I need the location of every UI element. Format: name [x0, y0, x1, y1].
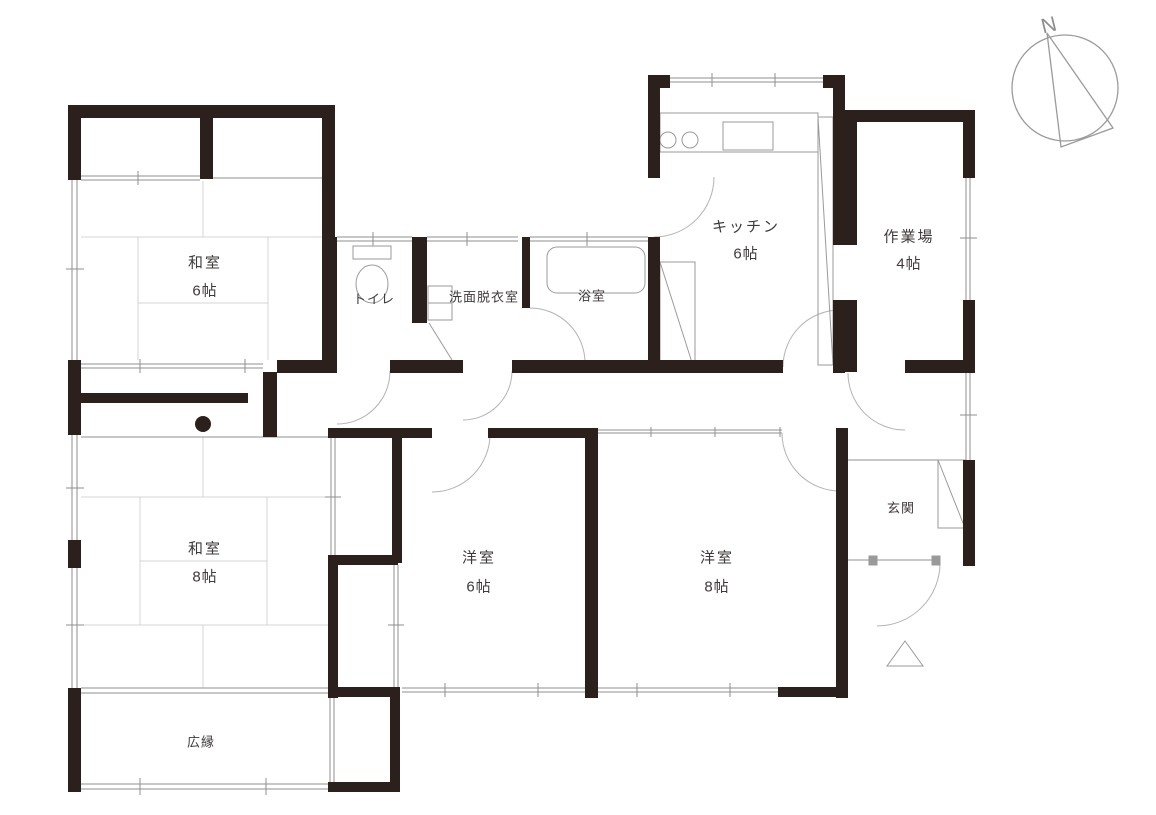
floor-plan: 和室 6帖 和室 8帖 トイレ 洗面脱衣室 浴室 キッチン 6帖 作業場 4帖 …: [0, 0, 1156, 815]
room-label-washitsu8-size: 8帖: [192, 570, 217, 585]
floor-plan-drawing: [0, 0, 1156, 815]
room-label-hiroen: 広縁: [187, 736, 215, 749]
room-label-kitchen-name: キッチン: [712, 220, 780, 235]
room-label-workspace-size: 4帖: [896, 257, 921, 272]
refrigerator-space-icon: [660, 262, 695, 372]
bath-door-arc: [530, 308, 585, 363]
kitchen-cabinet-icon: [818, 117, 833, 365]
bathtub-icon: [547, 247, 645, 293]
pillar-dot-icon: [195, 416, 211, 432]
room-label-genkan: 玄関: [887, 502, 915, 515]
door-jamb: [932, 556, 940, 565]
room-label-yoshitsu6-name: 洋室: [462, 551, 496, 566]
room-label-kitchen-size: 6帖: [733, 247, 758, 262]
entrance-marker-icon: [887, 641, 923, 666]
entrance-door-arc: [877, 563, 940, 626]
room-label-workspace-name: 作業場: [883, 230, 934, 245]
compass-north-icon: [1012, 33, 1118, 147]
room-label-yoshitsu6-size: 6帖: [466, 580, 491, 595]
toilet-door-arc: [337, 371, 390, 424]
door-jamb: [869, 556, 877, 565]
room-label-washitsu6-size: 6帖: [192, 284, 217, 299]
room-label-washroom: 洗面脱衣室: [449, 291, 519, 304]
washroom-door-arc: [463, 371, 512, 420]
room-label-yoshitsu8-name: 洋室: [700, 551, 734, 566]
room-label-yoshitsu8-size: 8帖: [704, 580, 729, 595]
fixtures-layer: [353, 113, 965, 666]
room-label-washitsu6-name: 和室: [188, 256, 222, 271]
walls-layer: [68, 75, 975, 792]
room-label-toilet: トイレ: [353, 293, 395, 306]
yoshitsu6-door-arc: [432, 434, 490, 492]
kitchen-side-door-arc: [654, 177, 714, 237]
kitchen-counter-icon: [660, 113, 818, 152]
room-label-washitsu8-name: 和室: [188, 542, 222, 557]
shoe-cabinet-icon: [938, 460, 965, 528]
workspace-door-arc: [848, 373, 905, 430]
yoshitsu8-door-arc: [782, 433, 840, 491]
room-label-bath: 浴室: [578, 290, 606, 303]
